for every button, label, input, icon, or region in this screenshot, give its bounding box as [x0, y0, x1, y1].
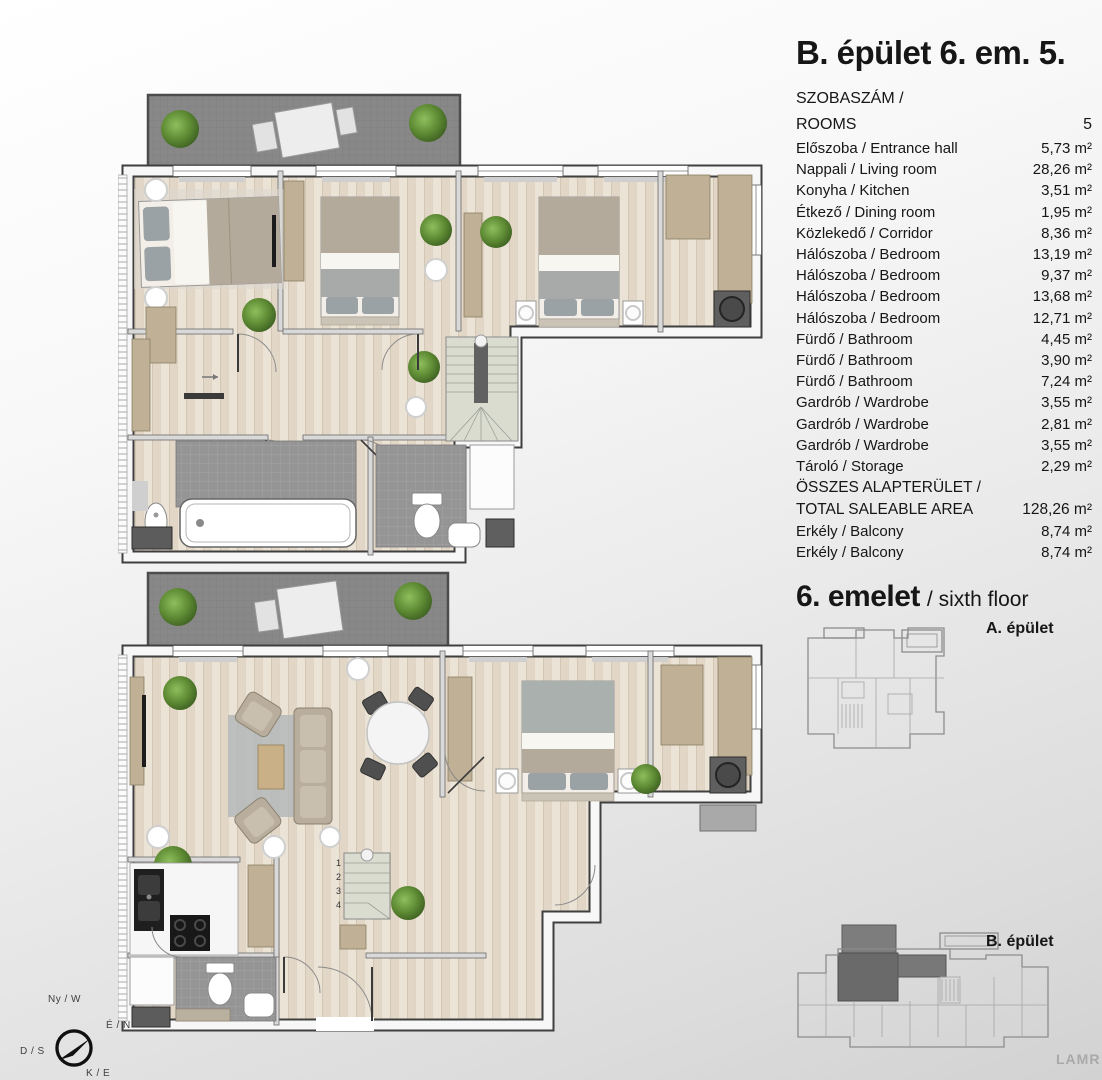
plant-icon: [394, 582, 432, 620]
stair-number: 2: [336, 872, 341, 882]
floor-title: 6. emelet: [796, 580, 920, 613]
rooms-count: 5: [1083, 112, 1092, 138]
room-label: Gardrób / Wardrobe: [796, 392, 929, 413]
bidet: [448, 523, 480, 547]
bathtub: [180, 499, 356, 547]
total-line2: TOTAL SALEABLE AREA 128,26 m²: [796, 499, 1092, 521]
wardrobe: [146, 307, 176, 363]
room-label: Fürdő / Bathroom: [796, 371, 913, 392]
room-label: Erkély / Balcony: [796, 542, 904, 563]
party-wall-hatch: [118, 175, 127, 553]
ceiling-light: [145, 287, 167, 309]
rooms-label-hu: SZOBASZÁM /: [796, 86, 904, 112]
room-label: Hálószoba / Bedroom: [796, 265, 940, 286]
room-label: Közlekedő / Corridor: [796, 223, 933, 244]
stairs-upper: [446, 335, 518, 441]
plant-icon: [163, 676, 197, 710]
cooktop: [170, 915, 210, 951]
room-area: 4,45 m²: [1041, 329, 1092, 350]
party-wall-hatch: [118, 655, 127, 1021]
table-row: Fürdő / Bathroom4,45 m²: [796, 329, 1092, 350]
room-label: Hálószoba / Bedroom: [796, 308, 940, 329]
balcony-row: Erkély / Balcony8,74 m²: [796, 521, 1092, 542]
table-row: Fürdő / Bathroom3,90 m²: [796, 350, 1092, 371]
unit-title: B. épület 6. em. 5.: [796, 34, 1092, 72]
rooms-header-line2: ROOMS 5: [796, 112, 1092, 138]
floor-subtitle: / sixth floor: [927, 588, 1029, 611]
total-label-en: TOTAL SALEABLE AREA: [796, 499, 973, 521]
total-area: 128,26 m²: [1022, 499, 1092, 521]
info-panel: B. épület 6. em. 5. SZOBASZÁM / ROOMS 5 …: [796, 34, 1092, 614]
ceiling-light: [145, 179, 167, 201]
table-row: Gardrób / Wardrobe3,55 m²: [796, 435, 1092, 456]
room-area: 5,73 m²: [1041, 138, 1092, 159]
lower-floor-plan: 1 2 3 4: [118, 565, 766, 1040]
tv-board: [130, 677, 144, 785]
room-label: Tároló / Storage: [796, 456, 904, 477]
wardrobe: [448, 677, 472, 781]
balcony-upper: [148, 95, 460, 171]
bed: [139, 197, 282, 288]
plant-icon: [480, 216, 512, 248]
total-label-hu: ÖSSZES ALAPTERÜLET /: [796, 477, 981, 499]
table-row: Konyha / Kitchen3,51 m²: [796, 180, 1092, 201]
storage-box: [486, 519, 514, 547]
wardrobe: [666, 175, 710, 239]
room-area: 3,55 m²: [1041, 392, 1092, 413]
room-area: 28,26 m²: [1033, 159, 1092, 180]
bath-mat: [132, 527, 172, 549]
room-label: Nappali / Living room: [796, 159, 937, 180]
rooms-label-en: ROOMS: [796, 112, 856, 138]
room-area: 2,81 m²: [1041, 414, 1092, 435]
bench: [176, 1009, 230, 1021]
closet: [340, 925, 366, 949]
plant-icon: [242, 298, 276, 332]
plant-icon: [161, 110, 199, 148]
room-area: 8,74 m²: [1041, 542, 1092, 563]
ceiling-light: [347, 658, 369, 680]
highlighted-unit: [838, 925, 946, 1001]
compass-south-label: D / S: [20, 1046, 45, 1057]
table-row: Hálószoba / Bedroom12,71 m²: [796, 308, 1092, 329]
plant-icon: [159, 588, 197, 626]
room-area: 1,95 m²: [1041, 202, 1092, 223]
sink: [244, 993, 274, 1017]
floorplan-sheet: 1 2 3 4 B. épület 6. em. 5. SZOBASZÁM /: [0, 0, 1102, 1080]
stair-number: 4: [336, 900, 341, 910]
balcony-divider: [700, 805, 756, 831]
building-b-label: B. épület: [986, 933, 1054, 951]
ceiling-light: [320, 827, 340, 847]
closet: [248, 865, 274, 947]
ceiling-light: [425, 259, 447, 281]
bath-mat: [132, 481, 148, 511]
table-row: Gardrób / Wardrobe2,81 m²: [796, 414, 1092, 435]
room-area: 12,71 m²: [1033, 308, 1092, 329]
stairs-lower: 1 2 3 4: [336, 849, 390, 919]
plant-icon: [631, 764, 661, 794]
toilet: [412, 493, 442, 538]
wardrobe: [718, 175, 752, 303]
wardrobe: [464, 213, 482, 317]
stair-number: 3: [336, 886, 341, 896]
ceiling-light: [263, 836, 285, 858]
room-area: 7,24 m²: [1041, 371, 1092, 392]
kitchen: [130, 863, 238, 955]
table-row: Fürdő / Bathroom7,24 m²: [796, 371, 1092, 392]
room-label: Fürdő / Bathroom: [796, 350, 913, 371]
tv-panel: [272, 215, 276, 267]
ceiling-light: [147, 826, 169, 848]
balcony-row: Erkély / Balcony8,74 m²: [796, 542, 1092, 563]
room-area: 8,36 m²: [1041, 223, 1092, 244]
floor-heading: 6. emelet/ sixth floor: [796, 580, 1092, 614]
room-area: 3,51 m²: [1041, 180, 1092, 201]
room-area: 9,37 m²: [1041, 265, 1092, 286]
balcony-lower: [148, 573, 448, 651]
room-area: 8,74 m²: [1041, 521, 1092, 542]
table-row: Hálószoba / Bedroom13,19 m²: [796, 244, 1092, 265]
kitchen-sink: [134, 869, 164, 931]
bed: [539, 197, 619, 327]
table-row: Tároló / Storage2,29 m²: [796, 456, 1092, 477]
room-area: 3,55 m²: [1041, 435, 1092, 456]
compass-west-label: Ny / W: [48, 994, 81, 1005]
stair-hatch: [842, 704, 862, 728]
table-row: Étkező / Dining room1,95 m²: [796, 202, 1092, 223]
tv: [142, 695, 146, 767]
building-a-overview-plan: [798, 616, 958, 766]
table-row: Hálószoba / Bedroom13,68 m²: [796, 286, 1092, 307]
room-label: Hálószoba / Bedroom: [796, 286, 940, 307]
plant-icon: [391, 886, 425, 920]
console-shelf: [184, 393, 224, 399]
room-label: Hálószoba / Bedroom: [796, 244, 940, 265]
rooms-header-line1: SZOBASZÁM /: [796, 86, 1092, 112]
stair-number: 1: [336, 858, 341, 868]
ceiling-light: [406, 397, 426, 417]
table-row: Hálószoba / Bedroom9,37 m²: [796, 265, 1092, 286]
room-label: Gardrób / Wardrobe: [796, 414, 929, 435]
table-row: Előszoba / Entrance hall5,73 m²: [796, 138, 1092, 159]
room-label: Étkező / Dining room: [796, 202, 935, 223]
room-label: Fürdő / Bathroom: [796, 329, 913, 350]
room-label: Előszoba / Entrance hall: [796, 138, 958, 159]
washing-machine: [714, 291, 750, 327]
washing-machine: [710, 757, 746, 793]
sofa: [294, 708, 332, 824]
room-area: 2,29 m²: [1041, 456, 1092, 477]
wardrobe: [284, 181, 304, 281]
wardrobe: [661, 665, 703, 745]
watermark: LAMR: [1056, 1051, 1100, 1067]
coffee-table: [258, 745, 284, 789]
stair-hatch: [942, 979, 958, 1001]
table-row: Nappali / Living room28,26 m²: [796, 159, 1092, 180]
compass-icon: [52, 1026, 96, 1070]
room-area: 13,19 m²: [1033, 244, 1092, 265]
room-label: Gardrób / Wardrobe: [796, 435, 929, 456]
bed: [522, 681, 614, 801]
compass-rose: Ny / W É / N D / S K / E: [18, 990, 158, 1080]
plant-icon: [420, 214, 452, 246]
room-label: Erkély / Balcony: [796, 521, 904, 542]
building-a-label: A. épület: [986, 620, 1054, 638]
shower: [470, 445, 514, 509]
area-table: Előszoba / Entrance hall5,73 m² Nappali …: [796, 138, 1092, 477]
upper-floor-plan: [118, 85, 766, 567]
total-line1: ÖSSZES ALAPTERÜLET /: [796, 477, 1092, 499]
room-area: 13,68 m²: [1033, 286, 1092, 307]
plant-icon: [408, 351, 440, 383]
toilet: [206, 963, 234, 1005]
wardrobe: [132, 339, 150, 431]
plant-icon: [409, 104, 447, 142]
compass-north-label: É / N: [106, 1020, 131, 1031]
room-label: Konyha / Kitchen: [796, 180, 909, 201]
room-area: 3,90 m²: [1041, 350, 1092, 371]
table-row: Gardrób / Wardrobe3,55 m²: [796, 392, 1092, 413]
table-row: Közlekedő / Corridor8,36 m²: [796, 223, 1092, 244]
bed: [321, 197, 399, 325]
